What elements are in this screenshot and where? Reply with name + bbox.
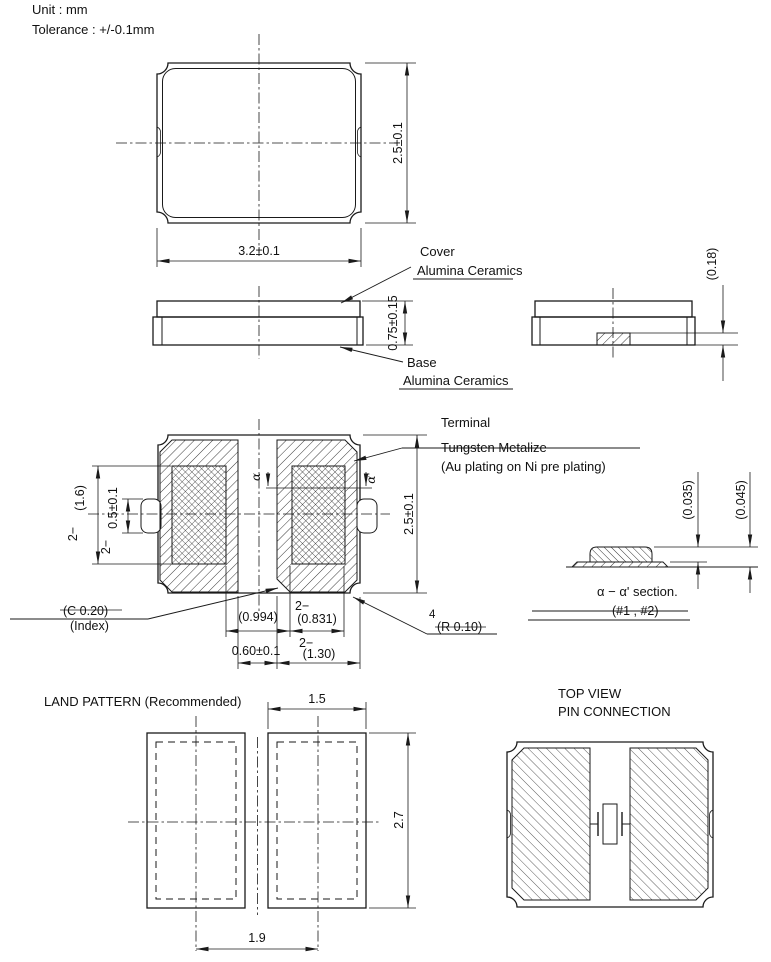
engineering-drawing: Unit : mm Tolerance : +/-0.1mm 3.2±0.1 2… <box>0 0 771 962</box>
drawing-canvas: Unit : mm Tolerance : +/-0.1mm 3.2±0.1 2… <box>0 0 771 962</box>
terminal-material-label: Tungsten Metalize <box>441 440 547 455</box>
metallize-width-qty: 2− <box>295 599 309 613</box>
corner-radius-dim: (R 0.10) <box>437 620 482 634</box>
clearance-dim: (0.994) <box>238 610 278 624</box>
castellation-bump-right <box>357 499 377 533</box>
crystal-symbol <box>590 804 630 844</box>
unit-label: Unit : mm <box>32 2 88 17</box>
terminal-label: Terminal <box>441 415 490 430</box>
cover-profile <box>535 301 692 317</box>
plating-mound <box>590 547 652 562</box>
index-label: (Index) <box>70 619 109 633</box>
leader-line <box>353 597 427 634</box>
top-view: 3.2±0.1 2.5±0.1 <box>116 34 416 267</box>
pin-pad-2 <box>630 748 708 900</box>
pin-connection-title: TOP VIEW <box>558 686 622 701</box>
metallize-height-dim: (1.6) <box>73 485 87 511</box>
cover-profile <box>157 301 360 317</box>
metallize-width-dim: (0.831) <box>297 612 337 626</box>
section-plating-dim: (0.035) <box>681 480 695 520</box>
base-material-label: Alumina Ceramics <box>403 373 509 388</box>
metallize-area-1 <box>172 466 226 564</box>
pad-width-dim: (1.30) <box>303 647 336 661</box>
cover-material-label: Alumina Ceramics <box>417 263 523 278</box>
terminal-plating-label: (Au plating on Ni pre plating) <box>441 459 606 474</box>
bottom-view: α α' (1.6) 2− 0.5±0.1 2− 2.5±0.1 (0.994)… <box>10 415 640 669</box>
alpha-prime-marker: α' <box>364 472 378 483</box>
leader-line <box>354 448 402 461</box>
plating-strip <box>572 562 668 567</box>
section-view: (0.035) (0.045) α − α' section. (#1 , #2… <box>528 472 758 620</box>
land-pad-2-inner-dashed <box>277 742 357 899</box>
gap-dim: 0.60±0.1 <box>232 644 281 658</box>
index-chamfer-dim: (C 0.20) <box>63 604 108 618</box>
side-view-height-dim: 0.75±0.15 <box>386 295 400 351</box>
leader-line <box>341 267 411 303</box>
top-view-height-dim: 2.5±0.1 <box>391 122 405 164</box>
pin-connection-view: TOP VIEW PIN CONNECTION <box>507 686 713 907</box>
end-view: (0.18) <box>532 248 738 381</box>
land-pattern: LAND PATTERN (Recommended) 1.5 2.7 1.9 <box>44 692 416 951</box>
base-profile <box>153 317 363 345</box>
metallize-height-qty: 2− <box>66 527 80 541</box>
tolerance-label: Tolerance : +/-0.1mm <box>32 22 154 37</box>
land-pattern-title: LAND PATTERN (Recommended) <box>44 694 241 709</box>
crystal-body <box>603 804 617 844</box>
pin-pad-1 <box>512 748 590 900</box>
end-view-terminal-thickness-dim: (0.18) <box>705 248 719 281</box>
section-caption: α − α' section. <box>597 584 678 599</box>
land-height-dim: 2.7 <box>392 811 406 828</box>
section-total-dim: (0.045) <box>734 480 748 520</box>
bottom-view-height-dim: 2.5±0.1 <box>402 493 416 535</box>
top-view-width-dim: 3.2±0.1 <box>238 244 280 258</box>
castellation-bump-left <box>141 499 161 533</box>
terminal-hatch-block <box>597 333 630 345</box>
cover-label: Cover <box>420 244 455 259</box>
side-view: 0.75±0.15 Cover Alumina Ceramics Base Al… <box>153 244 523 389</box>
land-pitch-dim: 1.9 <box>248 931 265 945</box>
pin-connection-subtitle: PIN CONNECTION <box>558 704 671 719</box>
base-label: Base <box>407 355 437 370</box>
metallize-area-2 <box>292 466 345 564</box>
castellation-qty: 2− <box>99 540 113 554</box>
land-pad-2 <box>268 733 366 908</box>
land-width-dim: 1.5 <box>308 692 325 706</box>
castellation-dim: 0.5±0.1 <box>106 487 120 529</box>
alpha-marker: α <box>249 473 263 481</box>
header: Unit : mm Tolerance : +/-0.1mm <box>32 2 154 37</box>
corner-radius-qty: 4 <box>429 609 436 621</box>
section-pads-ref: (#1 , #2) <box>612 604 659 618</box>
